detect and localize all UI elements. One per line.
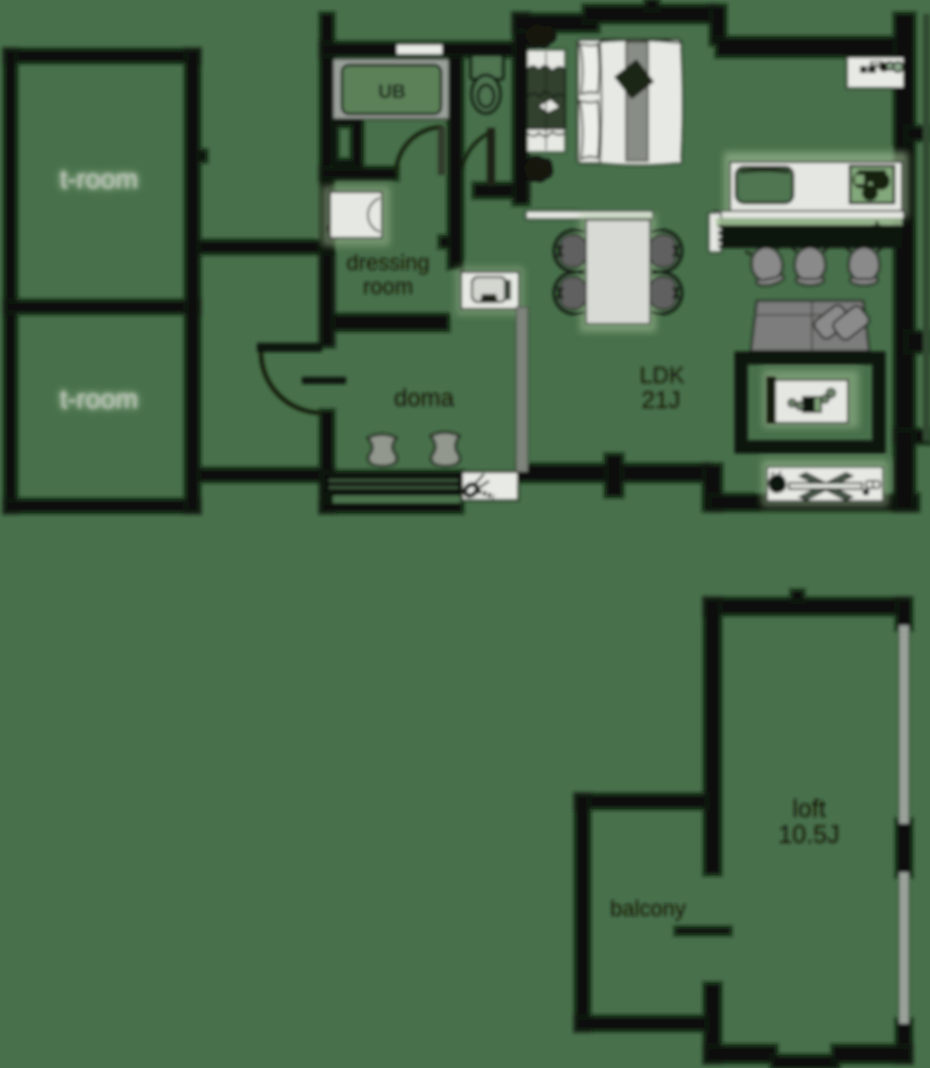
svg-text:doma: doma: [394, 385, 455, 412]
svg-text:dressing: dressing: [346, 250, 429, 275]
svg-text:t-room: t-room: [60, 384, 138, 414]
svg-text:t-room: t-room: [60, 164, 138, 194]
svg-text:loft: loft: [792, 795, 825, 823]
svg-text:balcony: balcony: [610, 896, 686, 921]
svg-text:21J: 21J: [642, 387, 681, 414]
svg-text:room: room: [363, 274, 413, 299]
svg-text:UB: UB: [378, 82, 405, 103]
svg-text:LDK: LDK: [640, 362, 685, 388]
svg-text:10.5J: 10.5J: [778, 821, 839, 849]
